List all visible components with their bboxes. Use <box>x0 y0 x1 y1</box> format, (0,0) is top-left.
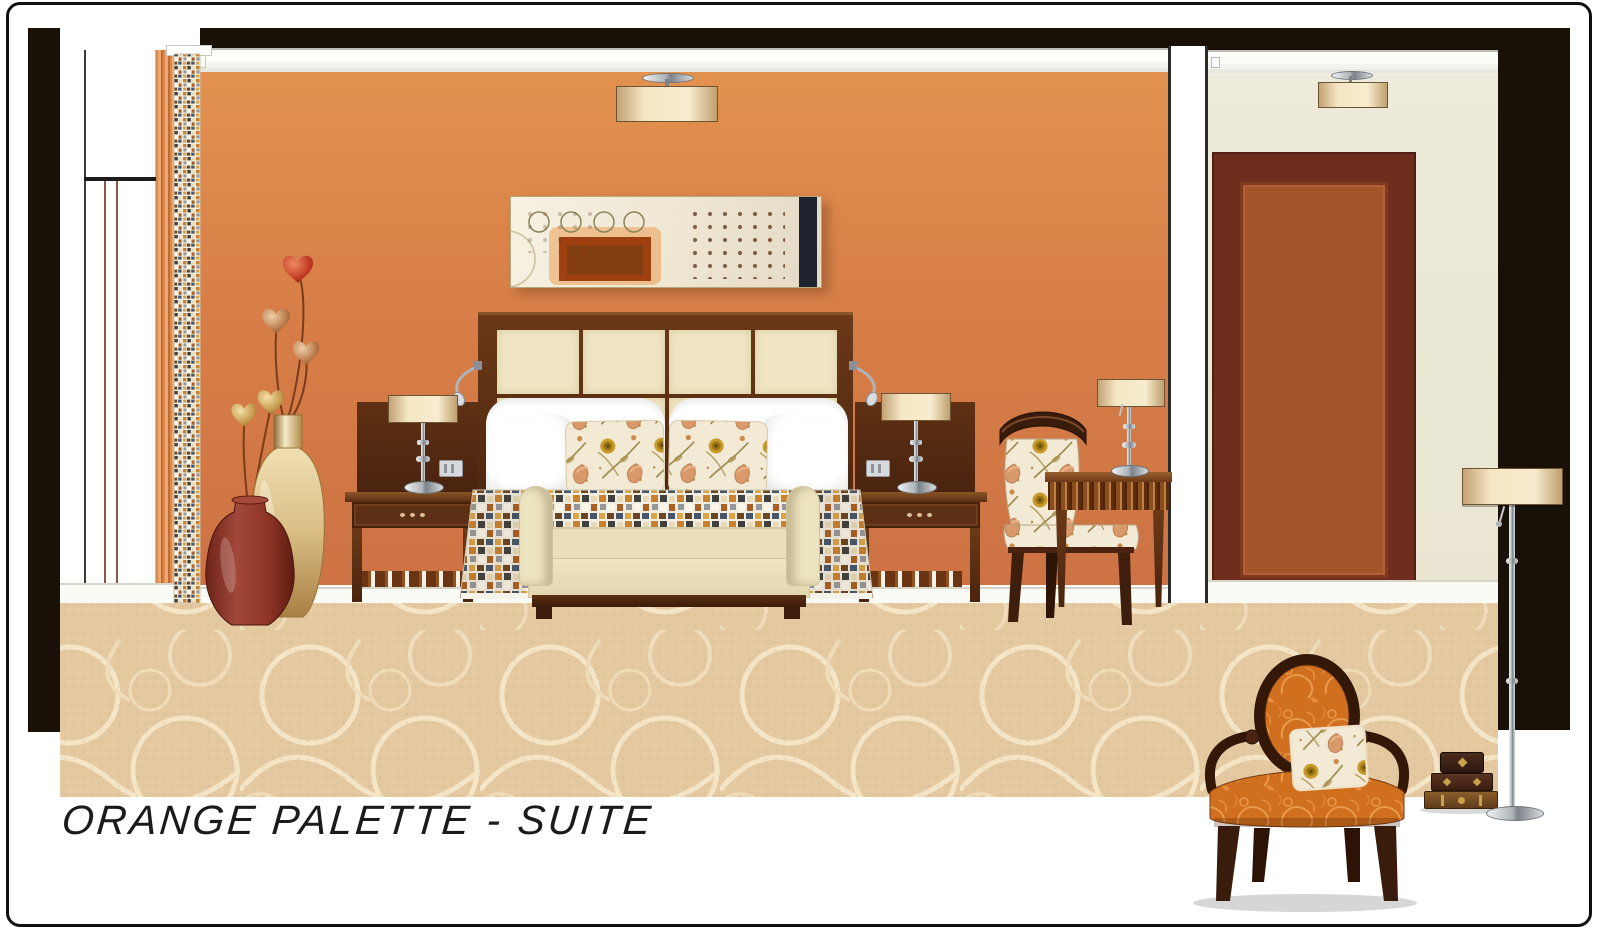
design-board: ORANGE PALETTE - SUITE <box>0 0 1600 933</box>
outer-border <box>6 2 1592 927</box>
